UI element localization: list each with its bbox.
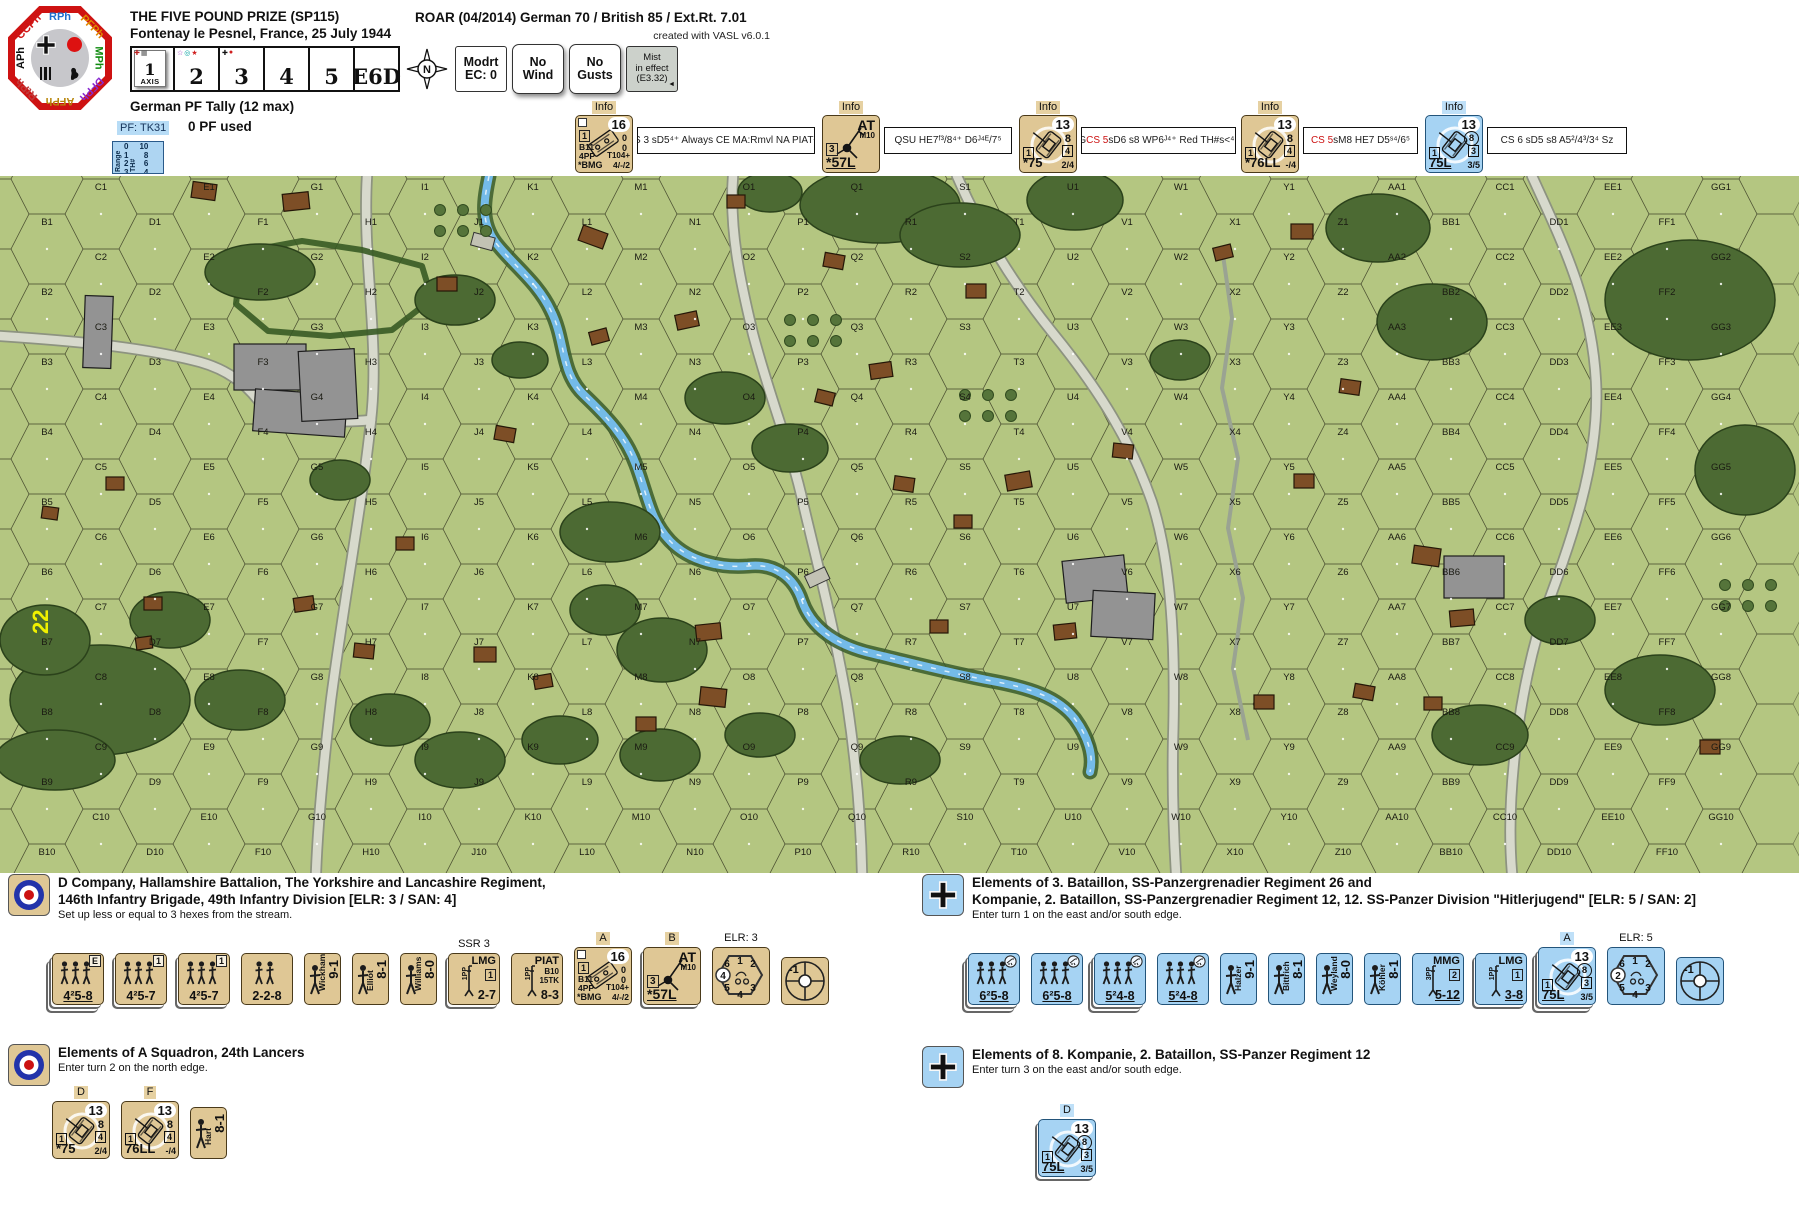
svg-text:G5: G5 bbox=[311, 462, 324, 473]
th-values: 10864 bbox=[139, 143, 148, 172]
tank-counter[interactable]: 13841*752/4 bbox=[1019, 115, 1077, 173]
wood-building bbox=[494, 425, 516, 442]
compass[interactable]: N bbox=[404, 46, 450, 92]
svg-text:V3: V3 bbox=[1121, 357, 1133, 368]
svg-text:EE1: EE1 bbox=[1604, 182, 1622, 193]
carrier-counter[interactable]: 16001B114PP*BMGT104+4/-/2 bbox=[575, 115, 633, 173]
svg-text:Z1: Z1 bbox=[1337, 217, 1348, 228]
counter-wrap: BATM103*57L bbox=[643, 932, 701, 1005]
svg-text:M1: M1 bbox=[634, 182, 647, 193]
svg-text:H1: H1 bbox=[365, 217, 377, 228]
svg-text:S3: S3 bbox=[959, 322, 971, 333]
ground-pressure: 8 bbox=[167, 1119, 173, 1131]
vasl-window: RPh PFPh MPh DFPh AFPh RtPh APh CCPh THE… bbox=[0, 0, 1799, 1212]
weather-line: EC: 0 bbox=[465, 69, 497, 83]
svg-text:Y9: Y9 bbox=[1283, 742, 1295, 753]
phase-label-mph[interactable]: MPh bbox=[92, 46, 104, 69]
svg-text:V4: V4 bbox=[1121, 427, 1133, 438]
weather-line: Wind bbox=[523, 69, 553, 83]
weather-box[interactable]: NoWind bbox=[512, 44, 564, 94]
svg-text:X3: X3 bbox=[1229, 357, 1241, 368]
armor-box: 3 bbox=[1081, 1149, 1092, 1161]
squad-factors: 6²5-8 bbox=[969, 989, 1019, 1003]
leader-counter[interactable]: Hart8-1 bbox=[190, 1107, 227, 1159]
tank-counter[interactable]: 1383175L3/5 bbox=[1538, 947, 1596, 1005]
orchard-tree bbox=[458, 205, 469, 216]
svg-text:GG3: GG3 bbox=[1711, 322, 1731, 333]
counter-wrap: A16001B114PP*BMGT104+4/-/2 bbox=[574, 932, 632, 1005]
squad-counter[interactable]: 6²5-8 bbox=[968, 953, 1020, 1005]
counter-wrap: ELR: 3 61 25 43 4 bbox=[712, 932, 770, 1005]
svg-text:Z9: Z9 bbox=[1337, 777, 1348, 788]
svg-text:E10: E10 bbox=[201, 812, 218, 823]
svg-text:Q7: Q7 bbox=[851, 602, 864, 613]
leader-rating: 8-1 bbox=[1290, 960, 1305, 979]
svg-text:4: 4 bbox=[737, 990, 743, 1001]
counter-label: D bbox=[74, 1086, 88, 1099]
gun-counter[interactable]: ATM103*57L bbox=[822, 115, 880, 173]
svg-text:B2: B2 bbox=[41, 287, 53, 298]
svg-text:D6: D6 bbox=[149, 567, 161, 578]
orchard-tree bbox=[785, 315, 796, 326]
svg-text:BB6: BB6 bbox=[1442, 567, 1460, 578]
svg-text:K6: K6 bbox=[527, 532, 539, 543]
turn-number: E6D bbox=[355, 48, 398, 90]
squad-counter[interactable]: 14²5-7 bbox=[178, 953, 230, 1005]
wood-building bbox=[1294, 474, 1314, 488]
leader-counter[interactable]: Halzer9-1 bbox=[1220, 953, 1257, 1005]
svg-text:L5: L5 bbox=[582, 497, 593, 508]
svg-text:4: 4 bbox=[720, 971, 726, 982]
svg-text:G7: G7 bbox=[311, 602, 324, 613]
sw-type: LMG bbox=[472, 955, 496, 967]
svg-text:K7: K7 bbox=[527, 602, 539, 613]
leader-counter[interactable]: Weyland8-0 bbox=[1316, 953, 1353, 1005]
formation-title-line1: D Company, Hallamshire Battalion, The Yo… bbox=[58, 874, 546, 891]
bars-icon bbox=[40, 67, 52, 80]
wood-building bbox=[437, 277, 457, 291]
wood-building bbox=[1053, 623, 1076, 640]
counter-label: F bbox=[144, 1086, 157, 1099]
svg-text:U10: U10 bbox=[1064, 812, 1081, 823]
svg-text:O8: O8 bbox=[743, 672, 756, 683]
weather-line: Modrt bbox=[464, 56, 499, 70]
svg-text:P9: P9 bbox=[797, 777, 809, 788]
weather-box[interactable]: NoGusts bbox=[569, 44, 621, 94]
british-oob-row: E4²5-814²5-714²5-72-2-8Wickham9-1Elliot8… bbox=[52, 932, 829, 1005]
woods-blob bbox=[1605, 240, 1775, 360]
svg-text:L3: L3 bbox=[582, 357, 593, 368]
german-cross-icon bbox=[922, 874, 964, 916]
sniper-counter[interactable]: -1 bbox=[781, 957, 829, 1005]
svg-text:K10: K10 bbox=[525, 812, 542, 823]
svg-text:O4: O4 bbox=[743, 392, 756, 403]
svg-text:GG4: GG4 bbox=[1711, 392, 1731, 403]
turn-cell-5[interactable]: 5 bbox=[310, 46, 355, 92]
svg-text:I7: I7 bbox=[421, 602, 429, 613]
svg-text:X10: X10 bbox=[1227, 847, 1244, 858]
svg-text:GG6: GG6 bbox=[1711, 532, 1731, 543]
squad-icon bbox=[123, 959, 160, 986]
sw-factors: 8-3 bbox=[541, 988, 559, 1002]
turret-counter[interactable]: 61 25 43 2 bbox=[1607, 947, 1665, 1005]
counter-label: A bbox=[1560, 932, 1573, 945]
svg-text:E3: E3 bbox=[203, 322, 215, 333]
svg-text:AA10: AA10 bbox=[1385, 812, 1408, 823]
piat-counter[interactable]: PIAT1PPB1015TK8-3 bbox=[511, 953, 563, 1005]
tank-counter[interactable]: 13841*76LL-/4 bbox=[1241, 115, 1299, 173]
squad-icon bbox=[1039, 959, 1076, 986]
svg-text:R5: R5 bbox=[905, 497, 917, 508]
marker-icon: ✚ bbox=[222, 49, 228, 57]
svg-text:Z2: Z2 bbox=[1337, 287, 1348, 298]
counter-wrap: MMG3PP25-12 bbox=[1412, 953, 1464, 1005]
wood-building bbox=[869, 362, 893, 380]
german2-section-header: Elements of 8. Kompanie, 2. Bataillon, S… bbox=[922, 1046, 1370, 1088]
svg-text:R2: R2 bbox=[905, 287, 917, 298]
svg-text:BB7: BB7 bbox=[1442, 637, 1460, 648]
phase-dial[interactable]: RPh PFPh MPh DFPh AFPh RtPh APh CCPh bbox=[8, 6, 112, 110]
svg-text:W1: W1 bbox=[1174, 182, 1188, 193]
svg-text:R4: R4 bbox=[905, 427, 917, 438]
roar-stats: ROAR (04/2014) German 70 / British 85 / … bbox=[415, 10, 747, 25]
svg-text:Y3: Y3 bbox=[1283, 322, 1295, 333]
counter-wrap: 5²4-8 bbox=[1157, 953, 1209, 1005]
svg-text:G2: G2 bbox=[311, 252, 324, 263]
squad-icon-wrap bbox=[1039, 959, 1076, 991]
svg-text:AA2: AA2 bbox=[1388, 252, 1406, 263]
svg-text:EE8: EE8 bbox=[1604, 672, 1622, 683]
leader-rating: 8-1 bbox=[374, 960, 389, 979]
svg-text:W2: W2 bbox=[1174, 252, 1188, 263]
svg-text:B8: B8 bbox=[41, 707, 53, 718]
svg-text:G9: G9 bbox=[311, 742, 324, 753]
svg-text:C10: C10 bbox=[92, 812, 109, 823]
counter-wrap: 13841*76LL-/4 bbox=[1241, 115, 1299, 173]
svg-text:P8: P8 bbox=[797, 707, 809, 718]
gun-caliber: 75L bbox=[1542, 987, 1564, 1002]
svg-text:GG8: GG8 bbox=[1711, 672, 1731, 683]
counter-wrap: 14²5-7 bbox=[115, 953, 167, 1005]
counter-wrap: ATM103*57L bbox=[822, 115, 880, 173]
svg-text:J6: J6 bbox=[474, 567, 484, 578]
squad-factors: 4²5-7 bbox=[179, 989, 229, 1003]
usage-number: 1 bbox=[485, 969, 496, 981]
svg-text:L9: L9 bbox=[582, 777, 593, 788]
sw-note: B10 bbox=[544, 967, 559, 976]
weather-box[interactable]: ModrtEC: 0 bbox=[455, 46, 507, 92]
svg-text:C3: C3 bbox=[95, 322, 107, 333]
svg-text:B9: B9 bbox=[41, 777, 53, 788]
note-text: QSU HE7ᶠ³/8⁴⁺ D6ᴶ⁴ᴱ/7⁵ bbox=[894, 135, 1001, 146]
counter-wrap: Köhler8-1 bbox=[1364, 953, 1401, 1005]
turret-counter[interactable]: 61 25 43 4 bbox=[712, 947, 770, 1005]
svg-text:L1: L1 bbox=[582, 217, 593, 228]
svg-text:K4: K4 bbox=[527, 392, 539, 403]
counter-wrap: 14²5-7 bbox=[178, 953, 230, 1005]
svg-text:V9: V9 bbox=[1121, 777, 1133, 788]
counter-wrap: E4²5-8 bbox=[52, 953, 104, 1005]
sniper-counter[interactable]: -1 bbox=[1676, 957, 1724, 1005]
svg-text:T8: T8 bbox=[1013, 707, 1024, 718]
mg-values: 3/5 bbox=[1580, 992, 1593, 1002]
leader-counter[interactable]: Wickham9-1 bbox=[304, 953, 341, 1005]
svg-text:I3: I3 bbox=[421, 322, 429, 333]
mg-values: -/4 bbox=[1285, 160, 1296, 170]
turn-cell-2[interactable]: ☆◎★2 bbox=[175, 46, 220, 92]
svg-text:P4: P4 bbox=[797, 427, 809, 438]
vehicle-notes-box: QSU HE7ᶠ³/8⁴⁺ D6ᴶ⁴ᴱ/7⁵ bbox=[884, 127, 1012, 154]
armor-box: 4 bbox=[164, 1131, 175, 1143]
leader-counter[interactable]: Köhler8-1 bbox=[1364, 953, 1401, 1005]
board-number: 22 bbox=[28, 610, 53, 634]
svg-text:M9: M9 bbox=[634, 742, 647, 753]
svg-text:FF9: FF9 bbox=[1659, 777, 1676, 788]
gun-caliber: 75L bbox=[1042, 1159, 1064, 1174]
usage-number: 2 bbox=[1449, 969, 1460, 981]
svg-text:Z5: Z5 bbox=[1337, 497, 1348, 508]
note-text: sD6 s8 WP6ᴶ⁴⁺ Red TH#s˂⁴⁴ bbox=[1108, 135, 1236, 146]
woods-blob bbox=[1150, 340, 1210, 380]
german-oob-row: 6²5-86²5-85²4-85²4-8Halzer9-1Bittrich8-1… bbox=[968, 932, 1724, 1005]
game-map[interactable]: 22 B1B2B3B4B5B6B7B8B9B10C1C2C3C4C5C6C7C8… bbox=[0, 176, 1799, 873]
svg-text:3: 3 bbox=[750, 983, 756, 994]
counter-wrap: Wickham9-1 bbox=[304, 953, 341, 1005]
svg-text:B3: B3 bbox=[41, 357, 53, 368]
orchard-tree bbox=[1743, 601, 1754, 612]
collapse-arrow-icon[interactable]: ◄ bbox=[668, 80, 675, 91]
svg-text:GG9: GG9 bbox=[1711, 742, 1731, 753]
svg-text:EE10: EE10 bbox=[1601, 812, 1624, 823]
svg-text:Y1: Y1 bbox=[1283, 182, 1295, 193]
red-dot-icon bbox=[67, 37, 82, 52]
svg-text:R8: R8 bbox=[905, 707, 917, 718]
svg-text:Q6: Q6 bbox=[851, 532, 864, 543]
svg-text:S10: S10 bbox=[957, 812, 974, 823]
turret-hex-icon: 61 25 43 4 bbox=[713, 948, 767, 1002]
svg-text:T10: T10 bbox=[1011, 847, 1027, 858]
svg-text:CC8: CC8 bbox=[1495, 672, 1514, 683]
tank-counter[interactable]: 13841*752/4 bbox=[52, 1101, 110, 1159]
svg-text:F7: F7 bbox=[257, 637, 268, 648]
orchard-tree bbox=[481, 205, 492, 216]
svg-text:I2: I2 bbox=[421, 252, 429, 263]
svg-text:Z10: Z10 bbox=[1335, 847, 1351, 858]
svg-text:Z8: Z8 bbox=[1337, 707, 1348, 718]
sw-counter[interactable]: LMG1PP12-7 bbox=[448, 953, 500, 1005]
counter-wrap: 5²4-8 bbox=[1094, 953, 1146, 1005]
orchard-tree bbox=[435, 226, 446, 237]
turn-number: 4 bbox=[265, 48, 308, 90]
svg-text:DD7: DD7 bbox=[1549, 637, 1568, 648]
mp-value: 13 bbox=[154, 1103, 176, 1118]
note-text: CS 6 sD5 s8 A5²/4³/3⁴ Sz bbox=[1501, 135, 1614, 146]
british-roundel-icon bbox=[8, 1044, 50, 1086]
svg-text:D8: D8 bbox=[149, 707, 161, 718]
svg-text:M6: M6 bbox=[634, 532, 647, 543]
svg-text:D7: D7 bbox=[149, 637, 161, 648]
leader-rating: 8-0 bbox=[422, 960, 437, 979]
svg-text:O9: O9 bbox=[743, 742, 756, 753]
armor-box: 4 bbox=[95, 1131, 106, 1143]
squad-icon bbox=[976, 959, 1013, 986]
svg-text:T7: T7 bbox=[1013, 637, 1024, 648]
svg-text:O2: O2 bbox=[743, 252, 756, 263]
svg-text:EE6: EE6 bbox=[1604, 532, 1622, 543]
turn-marker-icons: ✚● bbox=[222, 49, 233, 57]
svg-text:E6: E6 bbox=[203, 532, 215, 543]
weather-box[interactable]: Mistin effect(E3.32)◄ bbox=[626, 46, 678, 92]
svg-text:BB3: BB3 bbox=[1442, 357, 1460, 368]
leader-counter[interactable]: Elliot8-1 bbox=[352, 953, 389, 1005]
svg-text:F2: F2 bbox=[257, 287, 268, 298]
sw-counter[interactable]: LMG1PP13-8 bbox=[1475, 953, 1527, 1005]
counter-label: A bbox=[596, 932, 609, 945]
tow-label: T104+ bbox=[607, 151, 630, 160]
info-tag: Info bbox=[1258, 101, 1282, 114]
svg-text:V2: V2 bbox=[1121, 287, 1133, 298]
svg-text:J4: J4 bbox=[474, 427, 484, 438]
squad-counter[interactable]: E4²5-8 bbox=[52, 953, 104, 1005]
gun-counter[interactable]: ATM103*57L bbox=[643, 947, 701, 1005]
turn-cell-1[interactable]: ✚▦1AXIS bbox=[130, 46, 175, 92]
crew-icon-wrap bbox=[254, 959, 280, 991]
wood-building bbox=[106, 477, 124, 490]
counter-wrap: 13841*752/4 bbox=[1019, 115, 1077, 173]
svg-text:U4: U4 bbox=[1067, 392, 1079, 403]
range-value: 3 bbox=[124, 169, 128, 175]
squad-icon bbox=[1165, 959, 1202, 986]
mg-values: 4/-/2 bbox=[612, 992, 629, 1002]
svg-text:L2: L2 bbox=[582, 287, 593, 298]
weather-line: (E3.32) bbox=[636, 74, 667, 85]
wood-building bbox=[823, 252, 845, 269]
svg-text:M5: M5 bbox=[634, 462, 647, 473]
info-item: Info13841*752/4 bbox=[1019, 101, 1077, 173]
svg-text:N7: N7 bbox=[689, 637, 701, 648]
sw-counter[interactable]: MMG3PP25-12 bbox=[1412, 953, 1464, 1005]
orchard-tree bbox=[785, 336, 796, 347]
svg-text:CC4: CC4 bbox=[1495, 392, 1514, 403]
svg-text:H6: H6 bbox=[365, 567, 377, 578]
svg-text:F8: F8 bbox=[257, 707, 268, 718]
scenario-titleblock: THE FIVE POUND PRIZE (SP115) Fontenay le… bbox=[130, 8, 391, 42]
info-tag: Info bbox=[592, 101, 616, 114]
orchard-tree bbox=[435, 205, 446, 216]
leader-rating: 9-1 bbox=[1242, 960, 1257, 979]
turn-cell-4[interactable]: 4 bbox=[265, 46, 310, 92]
crew-counter[interactable]: 2-2-8 bbox=[241, 953, 293, 1005]
svg-text:D9: D9 bbox=[149, 777, 161, 788]
svg-text:N5: N5 bbox=[689, 497, 701, 508]
leader-counter[interactable]: Williams8-0 bbox=[400, 953, 437, 1005]
svg-text:M4: M4 bbox=[634, 392, 647, 403]
squad-counter[interactable]: 5²4-8 bbox=[1094, 953, 1146, 1005]
wood-building bbox=[1254, 695, 1274, 709]
leader-rating: 8-0 bbox=[1338, 960, 1353, 979]
formation-title: Elements of A Squadron, 24th Lancers bbox=[58, 1044, 305, 1061]
squad-counter[interactable]: 6²5-8 bbox=[1031, 953, 1083, 1005]
marker-icon: ☆ bbox=[177, 49, 183, 57]
svg-text:T9: T9 bbox=[1013, 777, 1024, 788]
svg-text:2: 2 bbox=[1615, 971, 1621, 982]
phase-label-rph[interactable]: RPh bbox=[49, 11, 71, 23]
svg-text:FF5: FF5 bbox=[1659, 497, 1676, 508]
squad-icon-wrap bbox=[1165, 959, 1202, 991]
mg-label: *BMG bbox=[578, 160, 603, 170]
phase-label-aph[interactable]: APh bbox=[15, 47, 27, 69]
svg-text:H8: H8 bbox=[365, 707, 377, 718]
svg-text:U5: U5 bbox=[1067, 462, 1079, 473]
svg-text:M7: M7 bbox=[634, 602, 647, 613]
svg-text:X2: X2 bbox=[1229, 287, 1241, 298]
svg-text:S7: S7 bbox=[959, 602, 971, 613]
counter-wrap: Bittrich8-1 bbox=[1268, 953, 1305, 1005]
svg-text:C8: C8 bbox=[95, 672, 107, 683]
svg-text:N2: N2 bbox=[689, 287, 701, 298]
svg-text:B1: B1 bbox=[41, 217, 53, 228]
tank-counter[interactable]: 1383175L3/5 bbox=[1038, 1119, 1096, 1177]
svg-text:K8: K8 bbox=[527, 672, 539, 683]
gun-caliber: 75L bbox=[1429, 155, 1451, 170]
compass-letter: N bbox=[423, 64, 431, 76]
svg-text:G4: G4 bbox=[311, 392, 324, 403]
squad-factors: 5²4-8 bbox=[1095, 989, 1145, 1003]
turn-marker-icons: ✚▦ bbox=[134, 49, 148, 57]
svg-text:C7: C7 bbox=[95, 602, 107, 613]
carrier-counter[interactable]: 16001B114PP*BMGT104+4/-/2 bbox=[574, 947, 632, 1005]
svg-text:N10: N10 bbox=[686, 847, 703, 858]
svg-text:K3: K3 bbox=[527, 322, 539, 333]
squad-icon-wrap bbox=[976, 959, 1013, 991]
svg-text:Z4: Z4 bbox=[1337, 427, 1348, 438]
svg-text:E7: E7 bbox=[203, 602, 215, 613]
counter-wrap: F1384176LL-/4 bbox=[121, 1086, 179, 1159]
svg-text:R9: R9 bbox=[905, 777, 917, 788]
turn-cell-3[interactable]: ✚●3 bbox=[220, 46, 265, 92]
stone-building bbox=[234, 344, 306, 390]
svg-text:F6: F6 bbox=[257, 567, 268, 578]
tank-counter[interactable]: 1383175L3/5 bbox=[1425, 115, 1483, 173]
formation-title-line1: Elements of 3. Bataillon, SS-Panzergrena… bbox=[972, 874, 1696, 891]
svg-text:P6: P6 bbox=[797, 567, 809, 578]
turn-cell-E6D[interactable]: E6D bbox=[355, 46, 400, 92]
svg-text:GG2: GG2 bbox=[1711, 252, 1731, 263]
wood-building bbox=[1424, 697, 1442, 710]
squad-counter[interactable]: 14²5-7 bbox=[115, 953, 167, 1005]
squad-counter[interactable]: 5²4-8 bbox=[1157, 953, 1209, 1005]
british-section-header: D Company, Hallamshire Battalion, The Yo… bbox=[8, 874, 546, 922]
svg-text:P3: P3 bbox=[797, 357, 809, 368]
marker-icon: ▦ bbox=[141, 49, 148, 57]
turret-hex-icon: 61 25 43 2 bbox=[1608, 948, 1662, 1002]
svg-text:B6: B6 bbox=[41, 567, 53, 578]
lion-icon bbox=[68, 66, 81, 81]
svg-text:AA6: AA6 bbox=[1388, 532, 1406, 543]
gun-caliber: *76LL bbox=[1245, 155, 1280, 170]
mp-value: 13 bbox=[1571, 949, 1593, 964]
phase-label-afph[interactable]: AFPh bbox=[46, 95, 75, 107]
svg-text:O3: O3 bbox=[743, 322, 756, 333]
svg-text:W7: W7 bbox=[1174, 602, 1188, 613]
formation-title-line2: Kompanie, 2. Bataillon, SS-Panzergrenadi… bbox=[972, 891, 1696, 908]
svg-text:T6: T6 bbox=[1013, 567, 1024, 578]
scenario-header: RPh PFPh MPh DFPh AFPh RtPh APh CCPh THE… bbox=[0, 0, 1799, 176]
leader-counter[interactable]: Bittrich8-1 bbox=[1268, 953, 1305, 1005]
gun-caliber: *75 bbox=[1023, 155, 1043, 170]
svg-text:Y2: Y2 bbox=[1283, 252, 1295, 263]
tank-counter[interactable]: 1384176LL-/4 bbox=[121, 1101, 179, 1159]
